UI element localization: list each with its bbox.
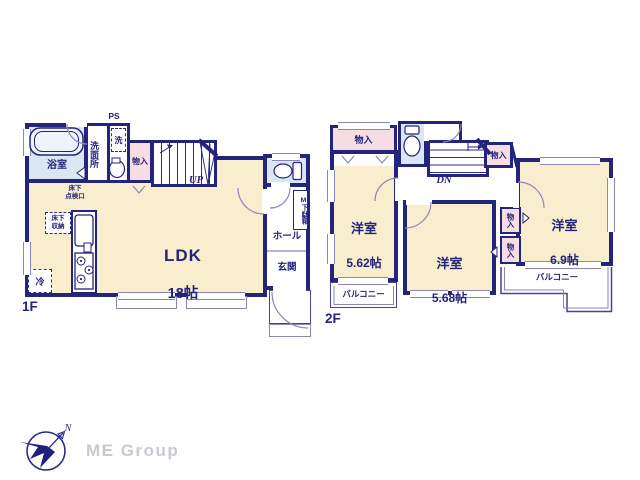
dn-label: DN (430, 175, 458, 188)
ldk-name: LDK (138, 246, 228, 267)
balcony-right-label: バルコニー (528, 272, 586, 282)
shoe-cabinet-label: M下駄箱 (294, 192, 307, 229)
entrance-porch (269, 290, 311, 324)
floorplan-canvas: 洗 物入 床下 収納 冷 LDK 18帖 浴室 洗面所 (0, 0, 640, 480)
door-gap-washroom (66, 122, 87, 127)
room-a-name: 洋室 (330, 221, 398, 237)
room-b-size: 5.68帖 (403, 291, 496, 306)
door-gap-toilet-1f (271, 182, 290, 188)
door-gap-front-door (273, 285, 306, 291)
ldk-label: LDK 18帖 (138, 226, 228, 323)
stairs-2f (427, 140, 489, 177)
window-closet-2f-top (338, 122, 390, 130)
window-bath-left (23, 129, 31, 156)
window-room-a-left-1 (327, 170, 335, 202)
window-ldk-left (23, 242, 31, 275)
brand-logo-text: ME Group (86, 441, 179, 461)
hatch-label: 床下 点検口 (62, 185, 88, 201)
closet-2f-mid: 物入 (484, 142, 513, 168)
door-gap-room-a (395, 178, 401, 201)
ps-label: PS (102, 111, 126, 121)
compass-bird-icon (20, 442, 55, 468)
washer-pan: 洗 (111, 128, 126, 152)
entrance-step (269, 324, 311, 337)
room-a-size: 5.62帖 (330, 256, 398, 271)
door-gap-toilet-2f (424, 124, 429, 141)
window-toilet-1f-top (272, 153, 300, 161)
room-b-name: 洋室 (403, 256, 496, 272)
underfloor-storage-box: 床下 収納 (45, 212, 71, 234)
door-gap-room-b (406, 199, 432, 205)
room-c-name: 洋室 (516, 218, 613, 234)
room-a-label: 洋室 5.62帖 (330, 201, 398, 290)
closet-door-strip (334, 154, 394, 166)
washroom-label: 洗面所 (87, 127, 99, 181)
room-c-size: 6.9帖 (516, 253, 613, 268)
fridge-box: 冷 (28, 269, 52, 293)
entrance-label: 玄関 (269, 262, 305, 274)
closet-1f: 物入 (127, 140, 153, 183)
bath-label: 浴室 (31, 160, 83, 172)
compass-north-arrow (47, 433, 63, 450)
room-b-label: 洋室 5.68帖 (403, 236, 496, 325)
room-bath (25, 123, 88, 183)
up-label: UP (182, 175, 210, 188)
hall-label: ホール (269, 231, 305, 243)
compass: N (16, 418, 80, 480)
floor1-label: 1F (22, 299, 52, 315)
floor2-label: 2F (325, 311, 355, 327)
door-gap-ldk-hall (262, 189, 268, 214)
balcony-left-label: バルコニー (335, 289, 392, 299)
room-toilet-2f (398, 121, 427, 167)
ldk-size: 18帖 (138, 286, 228, 304)
window-room-c-top (540, 157, 600, 165)
stair-hall-nook (427, 121, 462, 142)
compass-n-label: N (64, 423, 73, 434)
kitchen-counter (71, 210, 97, 294)
